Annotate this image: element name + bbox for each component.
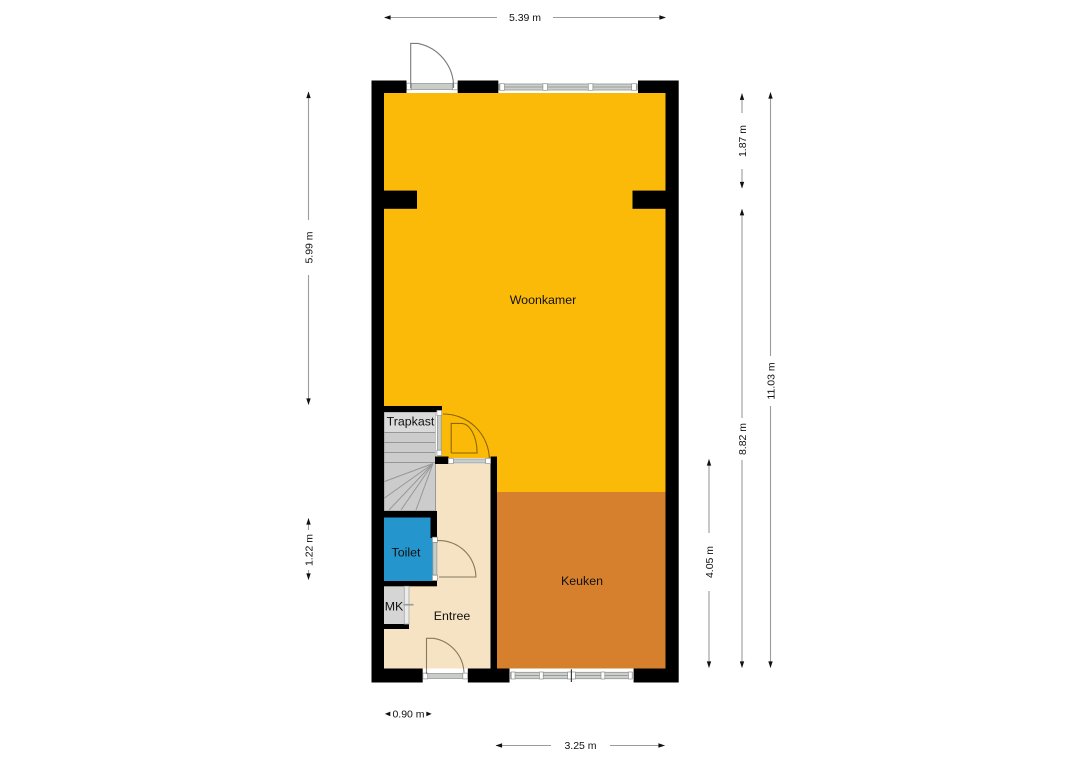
svg-text:3.25 m: 3.25 m (564, 740, 596, 752)
svg-text:Woonkamer: Woonkamer (510, 293, 577, 307)
svg-text:4.05 m: 4.05 m (704, 546, 716, 578)
svg-text:MK: MK (385, 600, 404, 614)
svg-text:Entree: Entree (434, 609, 471, 623)
svg-text:8.82 m: 8.82 m (737, 423, 749, 455)
svg-text:Trapkast: Trapkast (387, 415, 435, 429)
svg-text:0.90 m: 0.90 m (392, 709, 424, 721)
svg-text:Keuken: Keuken (561, 574, 603, 588)
svg-text:5.99 m: 5.99 m (303, 231, 315, 263)
svg-text:1.87 m: 1.87 m (737, 125, 749, 157)
svg-text:11.03 m: 11.03 m (765, 362, 777, 399)
svg-text:5.39 m: 5.39 m (509, 12, 541, 24)
svg-text:Toilet: Toilet (392, 546, 421, 560)
svg-text:1.22 m: 1.22 m (303, 534, 315, 566)
